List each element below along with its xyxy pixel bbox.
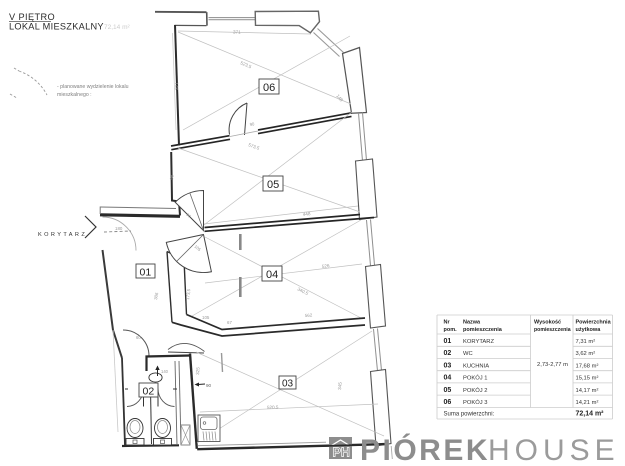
svg-text:72,14 m²: 72,14 m²	[576, 411, 605, 418]
svg-text:520.5: 520.5	[267, 405, 279, 410]
svg-text:V PIĘTRO: V PIĘTRO	[9, 12, 55, 22]
svg-text:526: 526	[322, 263, 331, 269]
svg-text:98: 98	[169, 174, 174, 180]
svg-text:140: 140	[161, 369, 169, 374]
svg-text:pomieszczenia: pomieszczenia	[534, 327, 571, 333]
svg-text:345: 345	[337, 382, 343, 391]
svg-text:562: 562	[305, 312, 313, 318]
svg-text:użytkowa: użytkowa	[576, 327, 602, 333]
svg-text:WC: WC	[463, 351, 473, 357]
svg-text:Nazwa: Nazwa	[463, 320, 481, 326]
svg-text:PH: PH	[333, 446, 350, 460]
svg-text:3,62 m²: 3,62 m²	[576, 351, 596, 357]
svg-text:05: 05	[267, 179, 279, 191]
svg-text:180: 180	[115, 226, 123, 231]
svg-text:340.5: 340.5	[297, 286, 310, 296]
svg-text:72,14 m²: 72,14 m²	[104, 24, 130, 31]
svg-text:03: 03	[282, 379, 294, 390]
svg-text:67: 67	[227, 320, 232, 325]
svg-text:PIÓREK: PIÓREK	[360, 433, 490, 466]
svg-text:- planowane wydzielenie lokalu: - planowane wydzielenie lokalu	[57, 84, 129, 90]
svg-text:02: 02	[143, 386, 155, 398]
svg-text:POKÓJ 1: POKÓJ 1	[463, 375, 487, 382]
svg-text:105: 105	[202, 315, 210, 320]
svg-text:2,73-2,77 m: 2,73-2,77 m	[537, 362, 568, 368]
svg-text:04: 04	[444, 375, 452, 382]
svg-text:02: 02	[444, 350, 452, 357]
svg-text:573.5: 573.5	[248, 142, 261, 151]
svg-text:90: 90	[206, 383, 212, 388]
svg-text:14,21 m²: 14,21 m²	[576, 400, 599, 406]
svg-text:523.5: 523.5	[240, 60, 253, 69]
svg-text:03: 03	[444, 362, 452, 369]
svg-text:POKÓJ 3: POKÓJ 3	[463, 399, 487, 406]
svg-text:60: 60	[136, 335, 141, 340]
svg-text:POKÓJ 2: POKÓJ 2	[463, 387, 487, 394]
svg-text:325: 325	[195, 367, 201, 375]
svg-text:Suma powierzchni:: Suma powierzchni:	[444, 411, 495, 417]
svg-text:14,17 m²: 14,17 m²	[576, 388, 599, 394]
svg-text:Nr: Nr	[444, 320, 451, 326]
svg-text:06: 06	[444, 399, 452, 406]
svg-text:pomieszczenia: pomieszczenia	[463, 327, 503, 333]
svg-text:06: 06	[263, 82, 275, 94]
svg-text:321: 321	[174, 82, 179, 90]
svg-text:KORYTARZ: KORYTARZ	[463, 339, 494, 345]
svg-text:306: 306	[153, 292, 159, 301]
svg-text:HOUSE: HOUSE	[488, 434, 620, 466]
svg-text:17,68 m²: 17,68 m²	[576, 363, 599, 369]
svg-text:01: 01	[140, 267, 152, 279]
svg-text:04: 04	[266, 269, 278, 281]
svg-text:15,15 m²: 15,15 m²	[576, 376, 599, 382]
svg-text:01: 01	[444, 338, 452, 345]
svg-text:90: 90	[249, 121, 255, 127]
svg-text:KUCHNIA: KUCHNIA	[463, 363, 489, 369]
svg-text:371: 371	[233, 30, 241, 35]
svg-text:pom.: pom.	[444, 327, 458, 333]
svg-text:7,31 m²: 7,31 m²	[576, 339, 596, 345]
svg-text:mieszkalnego :: mieszkalnego :	[57, 92, 92, 98]
svg-text:LOKAL MIESZKALNY: LOKAL MIESZKALNY	[9, 22, 104, 32]
svg-text:148: 148	[335, 93, 344, 102]
svg-text:173,5: 173,5	[185, 288, 191, 300]
svg-text:Wysokość: Wysokość	[534, 320, 561, 326]
svg-text:448: 448	[303, 211, 312, 217]
svg-text:KORYTARZ: KORYTARZ	[38, 232, 87, 238]
svg-text:05: 05	[444, 387, 452, 394]
svg-text:Powierzchnia: Powierzchnia	[576, 320, 612, 326]
